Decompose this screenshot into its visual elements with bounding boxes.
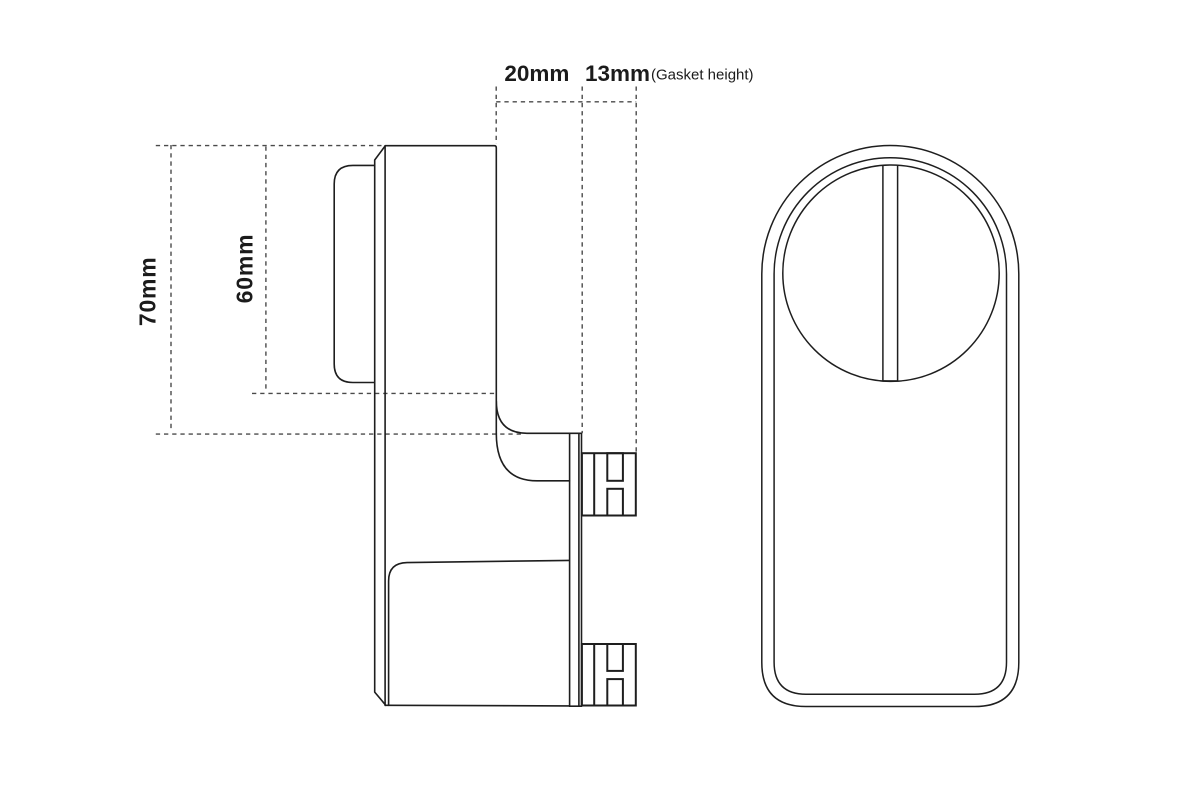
- svg-text:60mm: 60mm: [232, 234, 258, 304]
- svg-text:20mm: 20mm: [504, 61, 569, 86]
- svg-text:(Gasket height): (Gasket height): [651, 67, 754, 84]
- svg-text:70mm: 70mm: [134, 256, 160, 326]
- svg-text:13mm: 13mm: [585, 61, 650, 86]
